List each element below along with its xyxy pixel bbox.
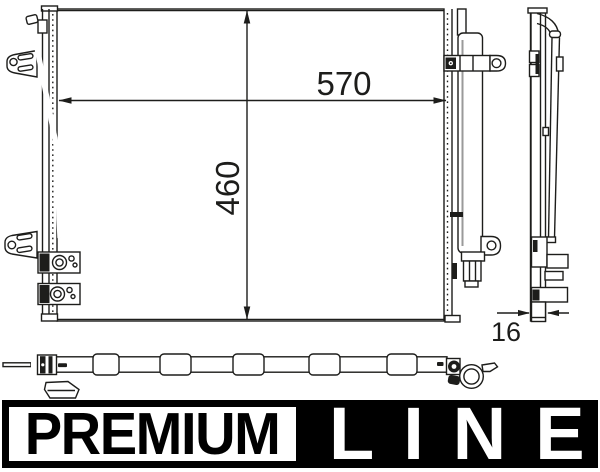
- premium-badge-label: PREMIUM: [25, 405, 280, 464]
- bottom-bracket-plate: [45, 382, 80, 399]
- arrowhead-inward-left: [547, 310, 559, 316]
- mounting-bracket-top-left: [7, 51, 37, 78]
- pipe-end-cap: [26, 14, 39, 24]
- refrigerant-port-block-upper: [38, 252, 80, 273]
- premium-badge: PREMIUM: [2, 400, 303, 468]
- drier-bottom-fittings: [453, 252, 485, 287]
- bottom-pipe-stub: [3, 363, 31, 367]
- arrowhead-inward-right: [518, 310, 530, 316]
- bottom-right-fitting: [447, 359, 461, 375]
- premium-line-banner: PREMIUM LINE: [2, 400, 598, 468]
- line-badge: LINE: [303, 400, 598, 468]
- height-dimension-label: 460: [209, 160, 246, 215]
- depth-dimension-label: 16: [491, 317, 521, 347]
- drier-clamp-mark: [450, 212, 463, 217]
- receiver-drier: [444, 9, 506, 287]
- drier-top-bracket: [444, 56, 506, 72]
- condenser-core: [57, 9, 444, 321]
- bottom-view: [3, 354, 498, 398]
- front-view: [5, 6, 506, 322]
- drier-tab-bottom-view: [482, 363, 498, 372]
- side-mid-tab: [543, 128, 549, 136]
- condenser-technical-drawing-page: 570 460 16: [0, 0, 600, 472]
- width-dimension-label: 570: [316, 65, 371, 102]
- mounting-bracket-bottom-left: [5, 232, 37, 259]
- bottom-left-fitting: [38, 355, 57, 375]
- technical-drawing: 570 460 16: [0, 0, 600, 400]
- refrigerant-port-block-lower: [38, 284, 80, 305]
- line-badge-label: LINE: [329, 400, 598, 468]
- side-view: [528, 8, 568, 322]
